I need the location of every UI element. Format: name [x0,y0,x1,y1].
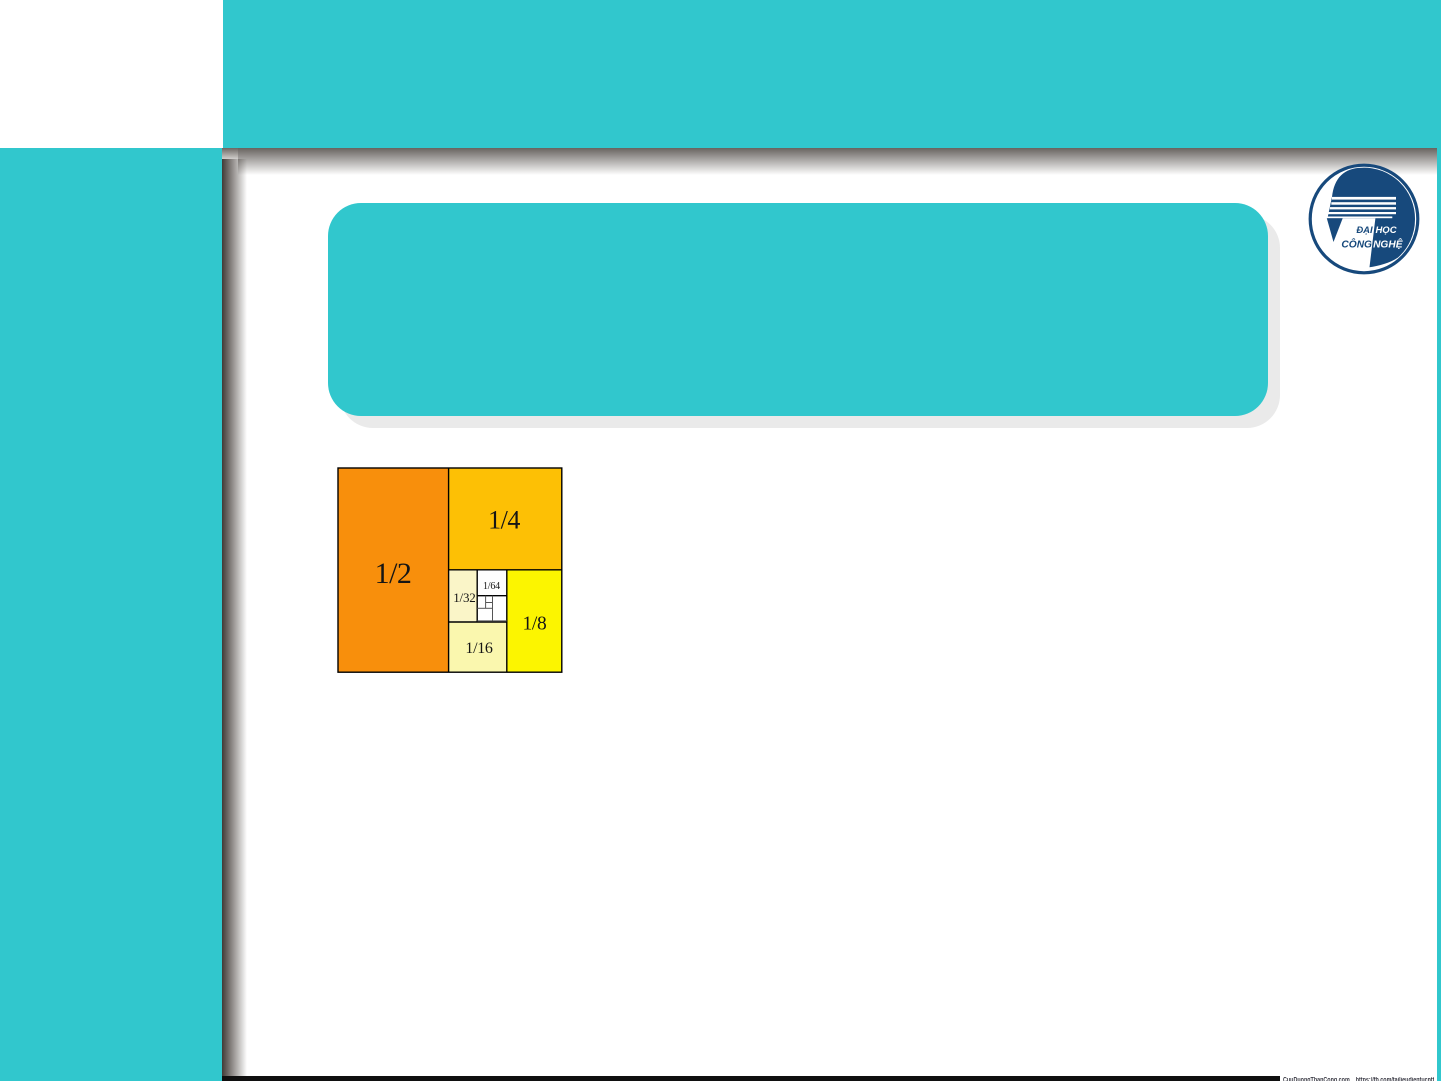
svg-text:NGHỆ: NGHỆ [1373,238,1404,251]
svg-text:1/8: 1/8 [522,614,546,635]
svg-text:1/32: 1/32 [453,590,475,605]
svg-text:1/16: 1/16 [465,640,493,657]
svg-text:ĐẠI: ĐẠI [1356,225,1373,236]
svg-text:1/4: 1/4 [488,506,520,535]
svg-text:CÔNG: CÔNG [1341,238,1372,251]
svg-text:HỌC: HỌC [1375,225,1396,236]
svg-text:1/2: 1/2 [375,557,412,590]
svg-text:1/64: 1/64 [483,581,500,592]
